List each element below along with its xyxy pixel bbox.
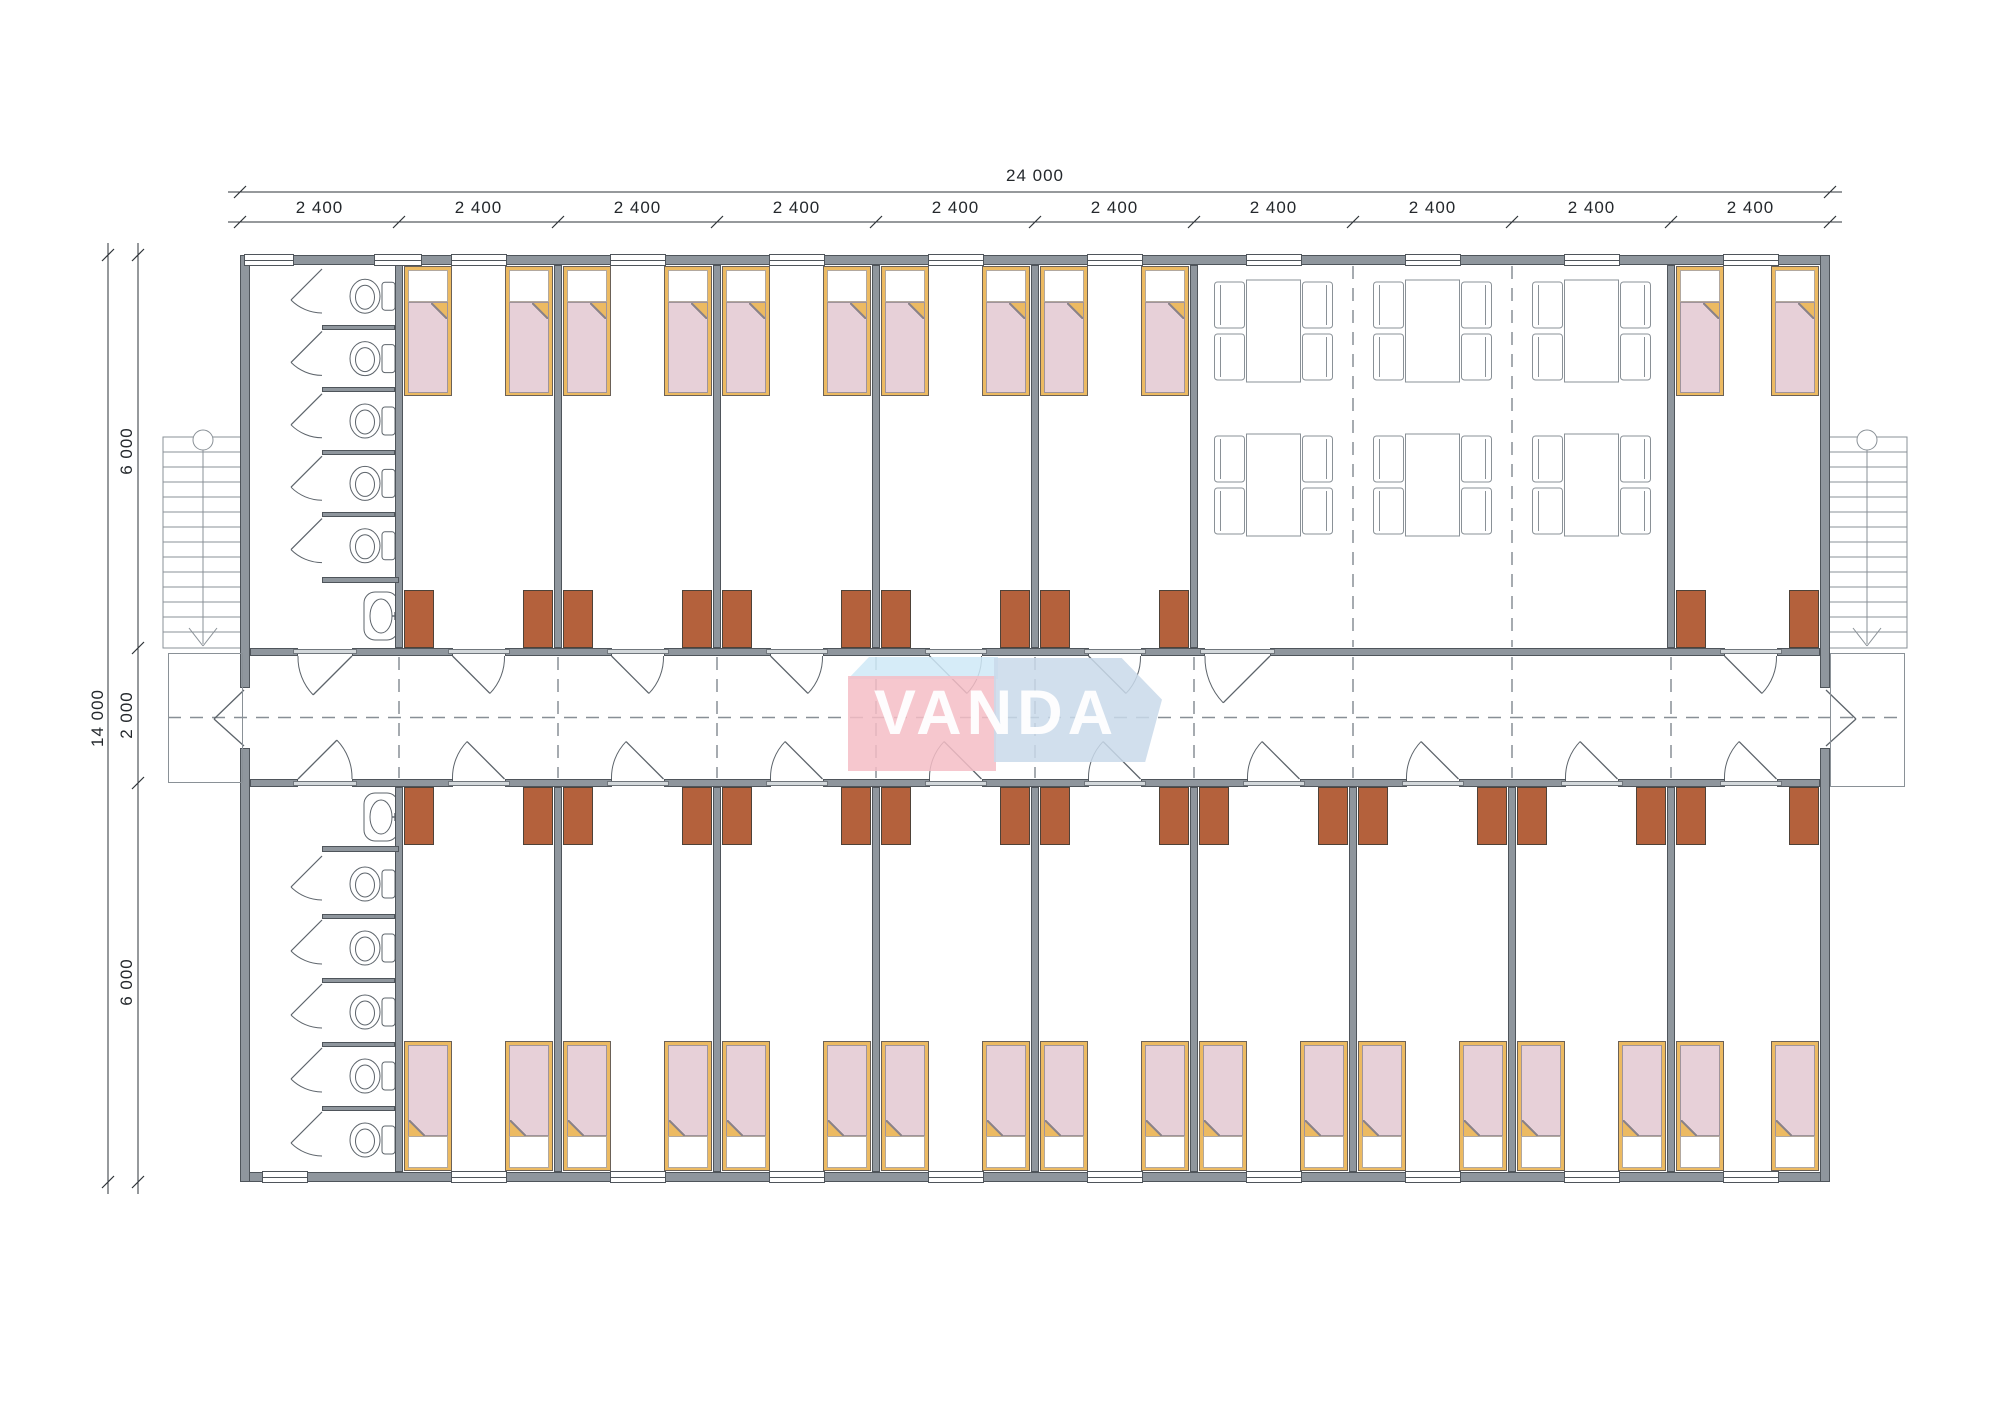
corridor-bottom-wall xyxy=(664,779,771,787)
bed-pillow xyxy=(1044,270,1084,302)
chair-icon xyxy=(1621,436,1651,482)
chair-icon xyxy=(1374,488,1404,534)
stall-doors xyxy=(291,269,322,1156)
dim-module-label: 2 400 xyxy=(1671,198,1830,218)
bed-pillow xyxy=(1775,270,1815,302)
door-threshold xyxy=(1200,649,1275,654)
dim-module-label: 2 400 xyxy=(876,198,1035,218)
dim-total-height-label: 14 000 xyxy=(88,648,108,788)
building-left-wall xyxy=(240,748,250,1182)
blanket-fold xyxy=(1045,1120,1061,1136)
wardrobe xyxy=(1636,787,1666,845)
window xyxy=(1405,1171,1461,1183)
stall-partition xyxy=(322,577,399,583)
landing-left xyxy=(168,653,243,783)
bed-pillow xyxy=(1145,1136,1185,1168)
door-threshold xyxy=(293,649,357,654)
bed xyxy=(1517,1041,1565,1171)
bed xyxy=(722,266,770,396)
corridor-bottom-wall xyxy=(352,779,453,787)
blanket-fold xyxy=(1681,1120,1697,1136)
blanket-fold xyxy=(886,1120,902,1136)
blanket-fold xyxy=(727,1120,743,1136)
dim-module-label: 2 400 xyxy=(1353,198,1512,218)
corridor-bottom-wall xyxy=(1777,779,1821,787)
corridor-top-wall xyxy=(1777,648,1821,656)
corridor-top-wall xyxy=(505,648,612,656)
stall-partition xyxy=(322,1106,395,1111)
door-threshold xyxy=(1720,781,1782,786)
stairs-right xyxy=(1827,430,1907,648)
blanket-fold xyxy=(1009,303,1025,319)
wardrobe xyxy=(1000,787,1030,845)
bed-pillow xyxy=(408,270,448,302)
bed xyxy=(505,1041,553,1171)
toilet-icon xyxy=(350,867,395,901)
dining-table xyxy=(1247,434,1301,536)
bed-pillow xyxy=(986,1136,1026,1168)
window xyxy=(769,1171,825,1183)
stall-partition xyxy=(322,1042,395,1047)
stall-partition xyxy=(322,978,395,983)
window xyxy=(1564,1171,1620,1183)
stall-partition xyxy=(322,387,395,392)
chair-icon xyxy=(1374,282,1404,328)
bed xyxy=(563,1041,611,1171)
toilet-icon xyxy=(350,404,395,438)
door-threshold xyxy=(1561,781,1623,786)
bed-pillow xyxy=(1680,1136,1720,1168)
chair-icon xyxy=(1462,436,1492,482)
blanket-fold xyxy=(590,303,606,319)
corridor-top-wall xyxy=(664,648,771,656)
window xyxy=(928,1171,984,1183)
bed xyxy=(664,1041,712,1171)
bed xyxy=(1358,1041,1406,1171)
blanket-fold xyxy=(828,1120,844,1136)
blanket-fold xyxy=(1464,1120,1480,1136)
building-right-wall xyxy=(1820,255,1830,688)
wardrobe xyxy=(1358,787,1388,845)
bed xyxy=(982,1041,1030,1171)
building-left-wall xyxy=(240,255,250,688)
dining-table xyxy=(1406,434,1460,536)
blanket-fold xyxy=(1623,1120,1639,1136)
bed-pillow xyxy=(1304,1136,1344,1168)
room-partition-wall xyxy=(1190,787,1198,1172)
room-partition-wall xyxy=(1508,787,1516,1172)
wardrobe xyxy=(1040,787,1070,845)
room-partition-wall xyxy=(1349,787,1357,1172)
door-threshold xyxy=(607,649,669,654)
wardrobe xyxy=(563,590,593,648)
bed-pillow xyxy=(827,270,867,302)
wardrobe xyxy=(1477,787,1507,845)
bed xyxy=(505,266,553,396)
blanket-fold xyxy=(1305,1120,1321,1136)
corridor-top-wall xyxy=(1141,648,1206,656)
door-threshold xyxy=(1402,781,1464,786)
bed-pillow xyxy=(1203,1136,1243,1168)
blanket-fold xyxy=(1204,1120,1220,1136)
door-threshold xyxy=(448,781,510,786)
chair-icon xyxy=(1533,282,1563,328)
stairs-left xyxy=(163,430,243,648)
corridor-top-wall xyxy=(823,648,930,656)
window xyxy=(1246,1171,1302,1183)
wardrobe xyxy=(404,590,434,648)
room-partition-wall xyxy=(395,265,403,648)
building-right-wall xyxy=(1820,748,1830,1182)
chair-icon xyxy=(1374,436,1404,482)
wardrobe xyxy=(523,787,553,845)
blanket-fold xyxy=(1522,1120,1538,1136)
chair-icon xyxy=(1533,436,1563,482)
bed xyxy=(823,266,871,396)
dim-module-label: 2 400 xyxy=(558,198,717,218)
bed xyxy=(563,266,611,396)
window xyxy=(610,1171,666,1183)
bed xyxy=(1771,1041,1819,1171)
bed-pillow xyxy=(885,1136,925,1168)
wardrobe xyxy=(1676,590,1706,648)
landing-right xyxy=(1830,653,1905,787)
stall-partition xyxy=(322,450,395,455)
bed xyxy=(722,1041,770,1171)
window xyxy=(374,254,422,266)
window xyxy=(928,254,984,266)
blanket-fold xyxy=(510,1120,526,1136)
bed-pillow xyxy=(726,270,766,302)
dim-band-label: 6 000 xyxy=(117,922,137,1042)
bed-pillow xyxy=(509,270,549,302)
bed xyxy=(1618,1041,1666,1171)
chair-icon xyxy=(1303,282,1333,328)
window xyxy=(1087,254,1143,266)
bed-pillow xyxy=(885,270,925,302)
wardrobe xyxy=(1159,787,1189,845)
corridor-top-wall xyxy=(352,648,453,656)
wardrobe xyxy=(881,787,911,845)
corridor-top-wall xyxy=(250,648,298,656)
window xyxy=(610,254,666,266)
wardrobe xyxy=(1789,590,1819,648)
chair-icon xyxy=(1215,488,1245,534)
wardrobe xyxy=(404,787,434,845)
blanket-fold xyxy=(1798,303,1814,319)
wardrobe xyxy=(1676,787,1706,845)
bed xyxy=(404,266,452,396)
chair-icon xyxy=(1621,334,1651,380)
bed-pillow xyxy=(408,1136,448,1168)
bed xyxy=(404,1041,452,1171)
room-partition-wall xyxy=(1031,265,1039,648)
door-threshold xyxy=(293,781,357,786)
blanket-fold xyxy=(1168,303,1184,319)
bed xyxy=(1676,266,1724,396)
wardrobe xyxy=(1318,787,1348,845)
bed-pillow xyxy=(1362,1136,1402,1168)
chair-icon xyxy=(1215,334,1245,380)
bed xyxy=(1141,1041,1189,1171)
wardrobe xyxy=(563,787,593,845)
corridor-top-wall xyxy=(982,648,1089,656)
bed-pillow xyxy=(1463,1136,1503,1168)
room-partition-wall xyxy=(872,787,880,1172)
chair-icon xyxy=(1621,282,1651,328)
room-partition-wall xyxy=(1190,265,1198,648)
door-threshold xyxy=(925,781,987,786)
blanket-fold xyxy=(409,1120,425,1136)
chair-icon xyxy=(1462,488,1492,534)
wardrobe xyxy=(881,590,911,648)
blanket-fold xyxy=(431,303,447,319)
corridor-bottom-wall xyxy=(823,779,930,787)
door-threshold xyxy=(448,649,510,654)
chair-icon xyxy=(1303,488,1333,534)
door-threshold xyxy=(1720,649,1782,654)
bed xyxy=(823,1041,871,1171)
bed-pillow xyxy=(1622,1136,1662,1168)
blanket-fold xyxy=(908,303,924,319)
toilet-icon xyxy=(350,931,395,965)
bed-pillow xyxy=(1680,270,1720,302)
bed xyxy=(1459,1041,1507,1171)
bed-pillow xyxy=(668,270,708,302)
bed-pillow xyxy=(827,1136,867,1168)
window xyxy=(1246,254,1302,266)
window xyxy=(1723,254,1779,266)
blanket-fold xyxy=(532,303,548,319)
dim-module-label: 2 400 xyxy=(240,198,399,218)
bed-pillow xyxy=(1145,270,1185,302)
corridor-bottom-wall xyxy=(982,779,1089,787)
bed-pillow xyxy=(726,1136,766,1168)
corridor-bottom-wall xyxy=(1141,779,1248,787)
dining-table xyxy=(1565,280,1619,382)
wardrobe xyxy=(523,590,553,648)
chair-icon xyxy=(1215,282,1245,328)
door-threshold xyxy=(766,781,828,786)
corridor-bottom-wall xyxy=(250,779,298,787)
wardrobe xyxy=(722,590,752,648)
vanda-logo: VANDA xyxy=(840,650,1170,780)
wardrobe xyxy=(722,787,752,845)
room-partition-wall xyxy=(713,787,721,1172)
bed xyxy=(1199,1041,1247,1171)
chair-icon xyxy=(1374,334,1404,380)
door-threshold xyxy=(1243,781,1305,786)
blanket-fold xyxy=(987,1120,1003,1136)
window xyxy=(451,1171,507,1183)
toilet-icon xyxy=(350,1123,395,1157)
dining-table xyxy=(1565,434,1619,536)
dim-band-label: 2 000 xyxy=(117,655,137,775)
wardrobe xyxy=(1040,590,1070,648)
dining-table xyxy=(1247,280,1301,382)
wardrobe xyxy=(682,590,712,648)
dim-module-label: 2 400 xyxy=(717,198,876,218)
wardrobe xyxy=(841,590,871,648)
door-threshold xyxy=(1084,649,1146,654)
wardrobe xyxy=(1517,787,1547,845)
sink-icon xyxy=(364,793,398,841)
blanket-fold xyxy=(1363,1120,1379,1136)
wardrobe xyxy=(1159,590,1189,648)
room-partition-wall xyxy=(554,787,562,1172)
stall-partition xyxy=(322,512,395,517)
corridor-bottom-wall xyxy=(1459,779,1566,787)
room-partition-wall xyxy=(1667,265,1675,648)
blanket-fold xyxy=(568,1120,584,1136)
blanket-fold xyxy=(1067,303,1083,319)
wardrobe xyxy=(1199,787,1229,845)
corridor-bottom-wall xyxy=(1300,779,1407,787)
room-partition-wall xyxy=(395,787,403,1172)
wardrobe xyxy=(841,787,871,845)
chair-icon xyxy=(1621,488,1651,534)
bed xyxy=(1040,1041,1088,1171)
stall-partition xyxy=(322,914,395,919)
chair-icon xyxy=(1303,334,1333,380)
stall-partition xyxy=(322,846,399,852)
bed-pillow xyxy=(1775,1136,1815,1168)
window xyxy=(1564,254,1620,266)
bed xyxy=(1771,266,1819,396)
window xyxy=(1087,1171,1143,1183)
vanda-logo-text: VANDA xyxy=(846,678,1146,748)
bed-pillow xyxy=(567,270,607,302)
bed xyxy=(881,266,929,396)
dim-module-label: 2 400 xyxy=(399,198,558,218)
window xyxy=(1723,1171,1779,1183)
wardrobe xyxy=(682,787,712,845)
room-partition-wall xyxy=(1031,787,1039,1172)
room-partition-wall xyxy=(872,265,880,648)
dining-table xyxy=(1406,280,1460,382)
toilet-icon xyxy=(350,529,395,563)
dim-total-width-label: 24 000 xyxy=(240,166,1830,186)
blanket-fold xyxy=(1776,1120,1792,1136)
room-partition-wall xyxy=(554,265,562,648)
toilet-icon xyxy=(350,1059,395,1093)
wardrobe xyxy=(1000,590,1030,648)
door-threshold xyxy=(925,649,987,654)
bed-pillow xyxy=(668,1136,708,1168)
bed xyxy=(1141,266,1189,396)
bed xyxy=(982,266,1030,396)
room-partition-wall xyxy=(1667,787,1675,1172)
window xyxy=(262,1171,308,1183)
bed xyxy=(1300,1041,1348,1171)
door-threshold xyxy=(1084,781,1146,786)
toilet-icon xyxy=(350,466,395,500)
bed-pillow xyxy=(986,270,1026,302)
blanket-fold xyxy=(691,303,707,319)
blanket-fold xyxy=(669,1120,685,1136)
toilet-icon xyxy=(350,342,395,376)
bed-pillow xyxy=(1044,1136,1084,1168)
dim-module-label: 2 400 xyxy=(1512,198,1671,218)
chair-icon xyxy=(1462,334,1492,380)
toilet-icon xyxy=(350,279,395,313)
bed xyxy=(881,1041,929,1171)
window xyxy=(769,254,825,266)
bed-pillow xyxy=(509,1136,549,1168)
bed-pillow xyxy=(1521,1136,1561,1168)
door-threshold xyxy=(607,781,669,786)
window xyxy=(451,254,507,266)
blanket-fold xyxy=(749,303,765,319)
bed xyxy=(1040,266,1088,396)
sink-icon xyxy=(364,592,398,640)
chair-icon xyxy=(1533,334,1563,380)
blanket-fold xyxy=(850,303,866,319)
dim-module-label: 2 400 xyxy=(1194,198,1353,218)
window xyxy=(1405,254,1461,266)
toilet-icon xyxy=(350,995,395,1029)
corridor-top-wall xyxy=(1270,648,1725,656)
chair-icon xyxy=(1533,488,1563,534)
room-partition-wall xyxy=(713,265,721,648)
window xyxy=(244,254,294,266)
bed xyxy=(1676,1041,1724,1171)
dim-module-label: 2 400 xyxy=(1035,198,1194,218)
chair-icon xyxy=(1215,436,1245,482)
chair-icon xyxy=(1303,436,1333,482)
dim-band-label: 6 000 xyxy=(117,391,137,511)
chair-icon xyxy=(1462,282,1492,328)
wardrobe xyxy=(1789,787,1819,845)
stall-partition xyxy=(322,325,395,330)
blanket-fold xyxy=(1146,1120,1162,1136)
floor-plan-canvas: VANDA 24 000 14 000 2 4002 4002 4002 400… xyxy=(0,0,2000,1415)
corridor-bottom-wall xyxy=(1618,779,1725,787)
blanket-fold xyxy=(1703,303,1719,319)
bed xyxy=(664,266,712,396)
door-threshold xyxy=(766,649,828,654)
corridor-bottom-wall xyxy=(505,779,612,787)
bed-pillow xyxy=(567,1136,607,1168)
